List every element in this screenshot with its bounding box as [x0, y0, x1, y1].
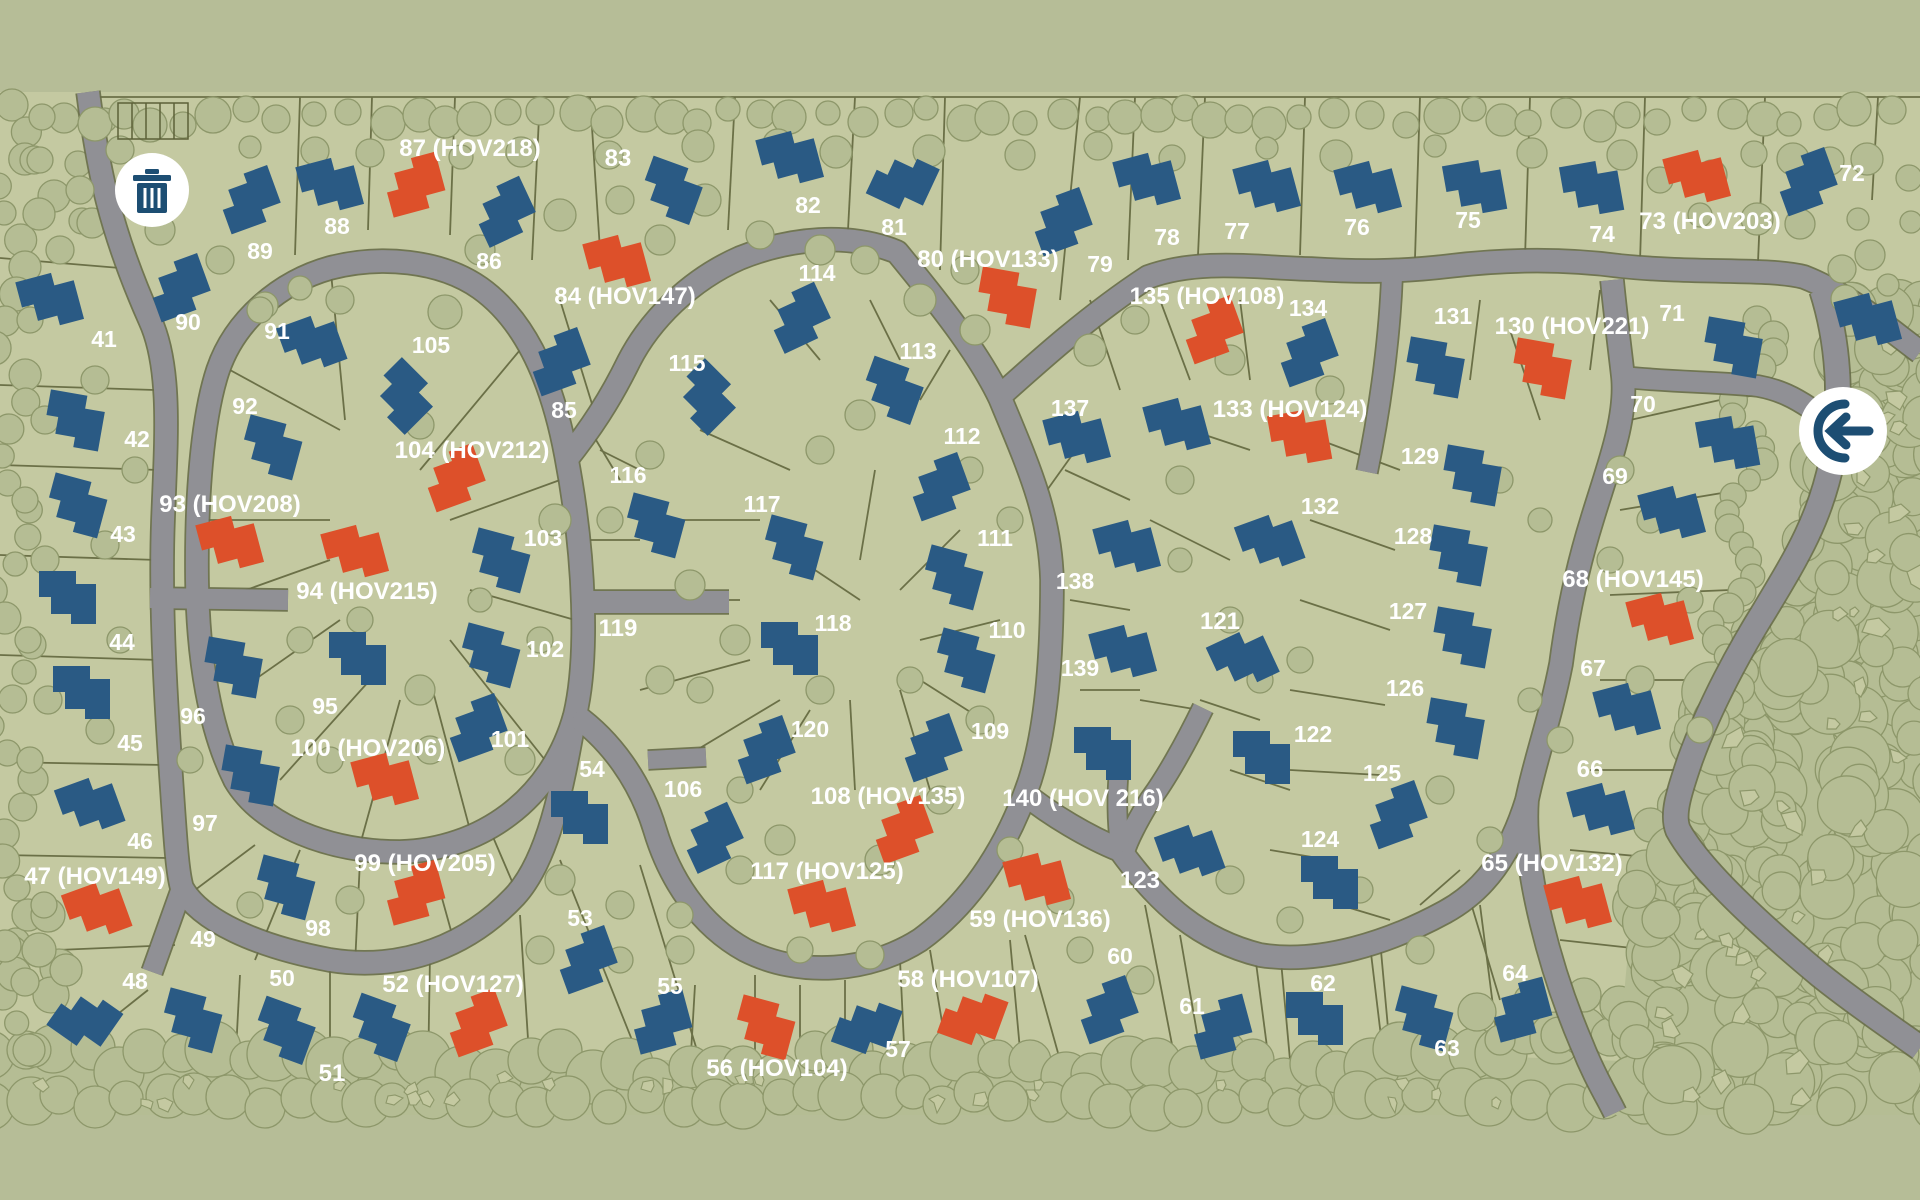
svg-text:129: 129 — [1401, 443, 1439, 469]
svg-text:80 (HOV133): 80 (HOV133) — [917, 246, 1058, 273]
svg-text:121: 121 — [1200, 608, 1240, 635]
svg-text:112: 112 — [943, 423, 980, 449]
svg-text:51: 51 — [319, 1060, 346, 1087]
svg-text:117: 117 — [743, 491, 780, 517]
svg-text:69: 69 — [1602, 463, 1628, 489]
svg-text:92: 92 — [232, 393, 258, 419]
svg-text:102: 102 — [526, 636, 564, 662]
svg-text:57: 57 — [885, 1036, 911, 1062]
svg-text:135 (HOV108): 135 (HOV108) — [1130, 283, 1285, 310]
svg-text:70: 70 — [1630, 391, 1656, 417]
svg-text:118: 118 — [814, 610, 851, 636]
svg-text:49: 49 — [190, 926, 216, 952]
svg-text:100 (HOV206): 100 (HOV206) — [291, 735, 446, 762]
svg-text:73 (HOV203): 73 (HOV203) — [1639, 208, 1780, 235]
svg-text:47 (HOV149): 47 (HOV149) — [24, 863, 165, 890]
svg-text:77: 77 — [1224, 218, 1250, 244]
svg-text:116: 116 — [609, 462, 646, 488]
svg-text:93 (HOV208): 93 (HOV208) — [159, 491, 300, 518]
svg-text:126: 126 — [1386, 675, 1424, 701]
svg-text:87 (HOV218): 87 (HOV218) — [399, 135, 540, 162]
svg-text:95: 95 — [312, 693, 338, 719]
svg-text:132: 132 — [1301, 493, 1339, 519]
svg-text:133 (HOV124): 133 (HOV124) — [1213, 396, 1368, 423]
svg-text:115: 115 — [668, 350, 705, 376]
svg-text:104 (HOV212): 104 (HOV212) — [395, 437, 550, 464]
svg-text:128: 128 — [1394, 523, 1433, 549]
svg-text:117 (HOV125): 117 (HOV125) — [750, 858, 903, 885]
svg-text:109: 109 — [971, 718, 1009, 744]
svg-text:53: 53 — [567, 905, 593, 931]
svg-text:89: 89 — [247, 238, 273, 264]
svg-text:66: 66 — [1577, 756, 1604, 783]
svg-text:82: 82 — [795, 192, 821, 218]
svg-text:91: 91 — [264, 318, 290, 344]
svg-text:98: 98 — [305, 915, 331, 941]
svg-text:64: 64 — [1502, 960, 1528, 986]
svg-text:42: 42 — [124, 426, 150, 452]
svg-text:94 (HOV215): 94 (HOV215) — [296, 578, 437, 605]
svg-text:106: 106 — [664, 776, 702, 802]
svg-text:114: 114 — [798, 260, 835, 286]
svg-text:103: 103 — [524, 525, 562, 551]
svg-text:108 (HOV135): 108 (HOV135) — [811, 783, 966, 810]
svg-text:54: 54 — [579, 756, 605, 782]
svg-text:63: 63 — [1434, 1035, 1460, 1061]
svg-text:48: 48 — [122, 968, 148, 994]
svg-text:65 (HOV132): 65 (HOV132) — [1481, 850, 1622, 877]
svg-text:79: 79 — [1087, 251, 1113, 277]
svg-text:96: 96 — [180, 703, 206, 729]
svg-text:131: 131 — [1434, 303, 1473, 329]
svg-text:140 (HOV 216): 140 (HOV 216) — [1002, 785, 1163, 812]
svg-text:72: 72 — [1839, 160, 1865, 186]
svg-text:120: 120 — [791, 716, 829, 742]
svg-text:46: 46 — [127, 828, 153, 854]
svg-text:125: 125 — [1363, 760, 1402, 786]
svg-text:99 (HOV205): 99 (HOV205) — [354, 850, 495, 877]
svg-text:45: 45 — [117, 730, 143, 756]
svg-text:122: 122 — [1294, 721, 1332, 747]
svg-text:81: 81 — [881, 214, 907, 240]
svg-text:76: 76 — [1344, 214, 1370, 240]
svg-text:83: 83 — [605, 145, 632, 172]
svg-text:85: 85 — [551, 397, 577, 423]
svg-text:44: 44 — [109, 629, 135, 655]
svg-text:58 (HOV107): 58 (HOV107) — [897, 966, 1038, 993]
svg-text:90: 90 — [175, 309, 201, 335]
svg-text:60: 60 — [1107, 943, 1133, 969]
svg-text:62: 62 — [1310, 970, 1336, 996]
svg-text:50: 50 — [269, 965, 295, 991]
svg-text:52 (HOV127): 52 (HOV127) — [382, 971, 523, 998]
svg-text:119: 119 — [599, 615, 638, 642]
svg-text:130 (HOV221): 130 (HOV221) — [1495, 313, 1650, 340]
svg-text:134: 134 — [1289, 295, 1328, 321]
svg-text:110: 110 — [988, 617, 1025, 643]
svg-text:101: 101 — [491, 726, 530, 752]
svg-text:105: 105 — [412, 332, 451, 358]
svg-text:78: 78 — [1154, 224, 1180, 250]
svg-text:43: 43 — [110, 521, 136, 547]
svg-text:55: 55 — [657, 973, 683, 999]
svg-text:97: 97 — [192, 810, 218, 836]
svg-text:71: 71 — [1659, 300, 1685, 326]
svg-text:61: 61 — [1179, 993, 1205, 1019]
svg-text:124: 124 — [1301, 826, 1340, 852]
svg-text:86: 86 — [476, 248, 502, 274]
svg-text:67: 67 — [1580, 655, 1606, 681]
svg-text:137: 137 — [1051, 395, 1089, 421]
svg-text:123: 123 — [1120, 867, 1160, 894]
svg-text:138: 138 — [1056, 568, 1095, 594]
svg-text:41: 41 — [91, 326, 117, 352]
svg-text:111: 111 — [977, 525, 1013, 551]
svg-text:113: 113 — [899, 338, 936, 364]
svg-text:88: 88 — [324, 213, 350, 239]
svg-text:75: 75 — [1455, 207, 1481, 233]
svg-text:59 (HOV136): 59 (HOV136) — [969, 906, 1110, 933]
svg-text:127: 127 — [1389, 598, 1427, 624]
svg-text:139: 139 — [1061, 655, 1099, 681]
svg-text:84 (HOV147): 84 (HOV147) — [554, 283, 695, 310]
svg-text:68 (HOV145): 68 (HOV145) — [1562, 566, 1703, 593]
svg-text:74: 74 — [1589, 221, 1615, 247]
svg-text:56 (HOV104): 56 (HOV104) — [706, 1055, 847, 1082]
